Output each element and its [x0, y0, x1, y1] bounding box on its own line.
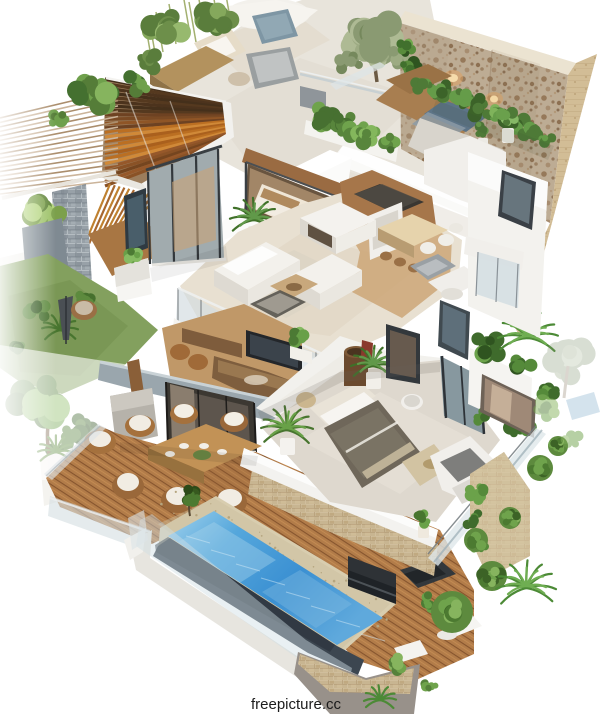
- svg-text:freepicture.cc: freepicture.cc: [251, 696, 342, 713]
